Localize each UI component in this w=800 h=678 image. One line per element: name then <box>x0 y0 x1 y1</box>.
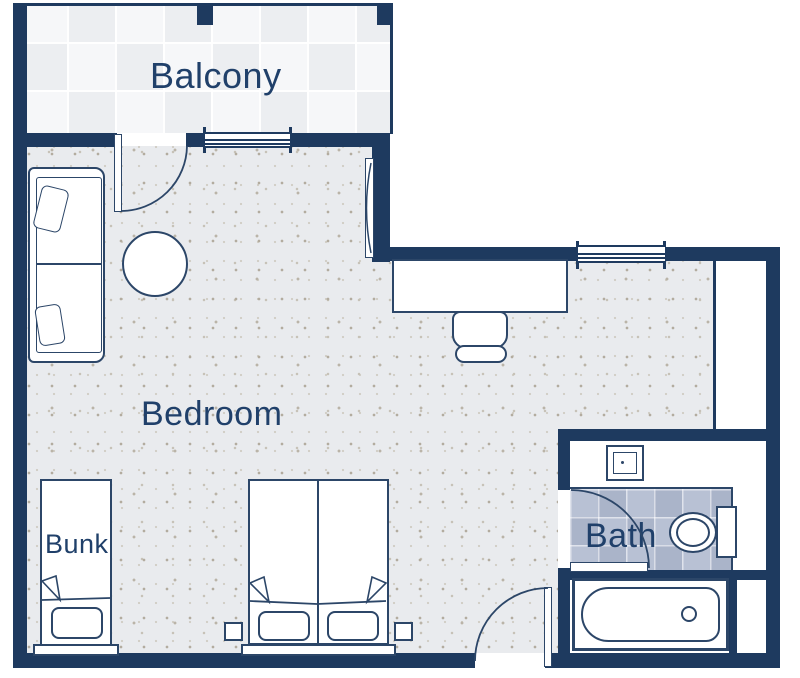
wall-mirror <box>365 158 374 258</box>
balcony-window <box>205 132 290 148</box>
balcony-door-panel <box>114 134 122 212</box>
bathtub-drain <box>681 606 697 622</box>
wall-balcony-bottom-a <box>13 133 117 147</box>
wall-tub-niche <box>729 570 737 653</box>
nightstand-left <box>224 622 243 641</box>
desk-chair-back <box>455 345 507 363</box>
bath-label: Bath <box>585 519 657 553</box>
toilet-bowl-inner <box>676 518 710 547</box>
double-bed-pillow-left <box>258 611 310 641</box>
wall-upper-right-b <box>665 247 780 261</box>
sink-basin <box>613 452 637 474</box>
double-bed-headboard <box>241 644 396 656</box>
sink-drain <box>621 461 624 464</box>
toilet-tank <box>716 506 737 558</box>
bedroom-window <box>578 245 665 263</box>
wall-step-vertical <box>372 133 390 262</box>
bunk-pillow <box>51 607 103 639</box>
wall-right <box>766 247 780 668</box>
sofa-seat-divider <box>36 263 102 265</box>
entry-door-panel <box>544 587 552 667</box>
double-bed-pillow-right <box>327 611 379 641</box>
wall-bath-top <box>558 429 780 441</box>
bath-door-panel <box>570 562 648 572</box>
balcony-label: Balcony <box>150 58 282 94</box>
floor-plan: Balcony Bedroom Bath Bunk <box>0 0 800 678</box>
wall-left <box>13 5 27 668</box>
wall-bath-left-b <box>558 568 570 653</box>
closet-line <box>713 261 716 429</box>
desk-chair-seat <box>452 311 508 349</box>
bathtub <box>581 587 720 642</box>
bunk-headboard <box>33 644 119 656</box>
desk <box>392 259 568 313</box>
bedroom-label: Bedroom <box>141 397 282 431</box>
balcony-post-left <box>197 4 213 25</box>
bunk-label: Bunk <box>45 531 109 558</box>
nightstand-right <box>394 622 413 641</box>
coffee-table <box>122 231 188 297</box>
double-bed-split <box>317 481 319 644</box>
wall-bottom-b <box>545 653 780 668</box>
balcony-post-right <box>377 4 393 25</box>
wall-bath-left-a <box>558 429 570 490</box>
